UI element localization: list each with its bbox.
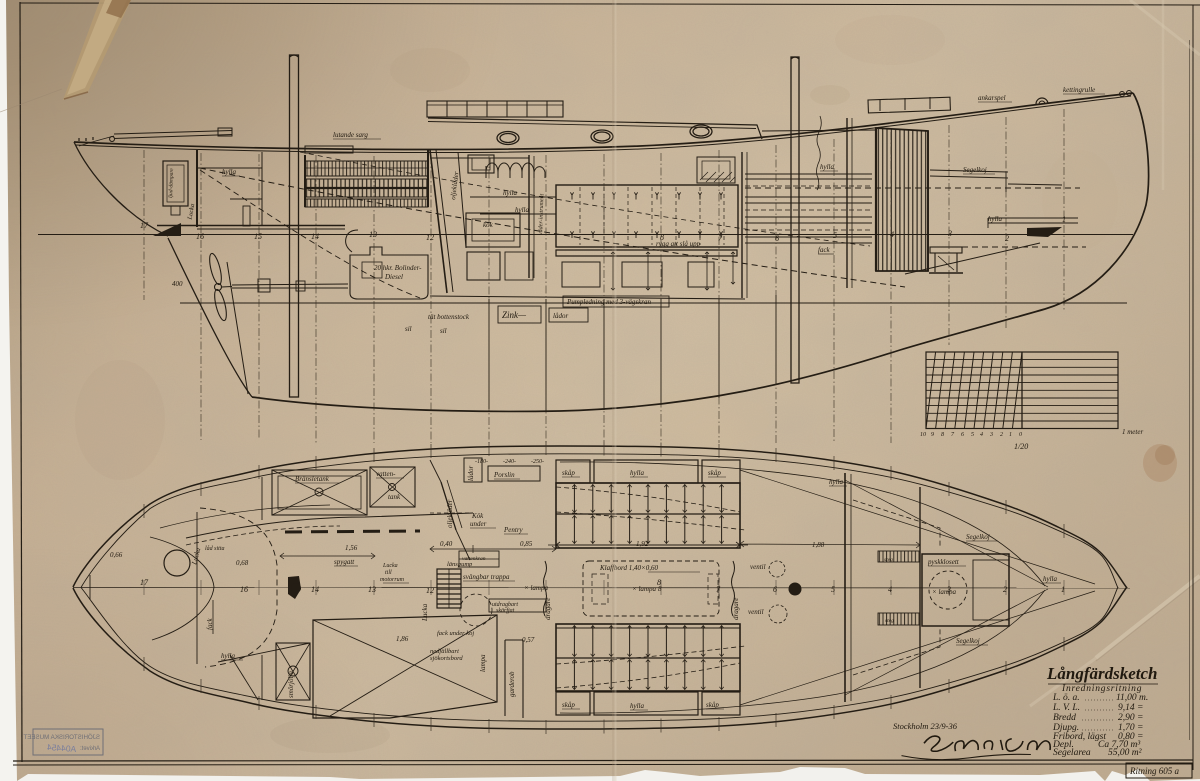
svg-text:0,68: 0,68 xyxy=(236,559,249,567)
svg-text:17: 17 xyxy=(140,221,149,230)
svg-text:skåp: skåp xyxy=(562,701,575,709)
svg-text:1: 1 xyxy=(1062,215,1066,224)
svg-text:6: 6 xyxy=(961,432,964,438)
svg-text:till: till xyxy=(385,570,392,576)
svg-text:1 meter: 1 meter xyxy=(1122,428,1143,436)
svg-text:0: 0 xyxy=(1019,432,1022,438)
svg-text:Bredd: Bredd xyxy=(1053,713,1076,723)
svg-text:hylla: hylla xyxy=(221,652,235,660)
svg-text:SJÖHISTORISKA MUSEET: SJÖHISTORISKA MUSEET xyxy=(23,734,100,741)
svg-text:1,86: 1,86 xyxy=(396,635,409,643)
svg-text:10: 10 xyxy=(920,432,926,438)
svg-text:4: 4 xyxy=(890,230,894,239)
svg-text:skåp: skåp xyxy=(706,701,719,709)
svg-text:1,88: 1,88 xyxy=(812,541,825,549)
svg-text:6: 6 xyxy=(775,234,779,243)
svg-text:ventil: ventil xyxy=(748,608,764,616)
svg-text:5: 5 xyxy=(971,432,974,438)
svg-text:12: 12 xyxy=(426,233,434,242)
svg-text:ljud-dämpare: ljud-dämpare xyxy=(168,168,175,198)
svg-text:8: 8 xyxy=(941,432,944,438)
svg-text:12: 12 xyxy=(426,586,434,595)
svg-text:dragare: dragare xyxy=(544,598,552,620)
svg-text:skärfjat: skärfjat xyxy=(496,607,515,614)
svg-text:rygg att slå upp: rygg att slå upp xyxy=(656,240,701,248)
svg-text:oljekläder: oljekläder xyxy=(446,499,454,528)
svg-text:Stockholm 23/9-36: Stockholm 23/9-36 xyxy=(893,721,958,731)
svg-text:hylla: hylla xyxy=(829,478,843,486)
svg-text:låd sitta: låd sitta xyxy=(205,545,225,552)
svg-text:17: 17 xyxy=(140,578,149,587)
svg-text:× lampa: × lampa xyxy=(632,585,656,593)
svg-text:Segelarea: Segelarea xyxy=(1053,748,1091,758)
svg-text:5: 5 xyxy=(833,231,837,240)
svg-text:× lampa: × lampa xyxy=(524,584,548,592)
svg-text:pyskklosett: pyskklosett xyxy=(927,558,960,566)
svg-text:2: 2 xyxy=(1003,585,1007,594)
svg-text:lådor: lådor xyxy=(553,312,568,320)
svg-text:steg: steg xyxy=(884,557,893,563)
svg-text:under: under xyxy=(470,520,487,528)
svg-text:Segelkoj: Segelkoj xyxy=(966,533,990,541)
svg-text:Porslin: Porslin xyxy=(493,471,515,479)
svg-text:Ritning 605 a: Ritning 605 a xyxy=(1129,766,1179,776)
svg-text:hylla: hylla xyxy=(630,702,644,710)
svg-text:hylla: hylla xyxy=(503,189,517,197)
svg-text:svängbar trappa: svängbar trappa xyxy=(463,573,510,581)
svg-text:3: 3 xyxy=(989,432,993,438)
svg-text:14: 14 xyxy=(311,585,319,594)
svg-text:lutande sarg: lutande sarg xyxy=(333,131,368,139)
svg-text:hylla: hylla xyxy=(1043,575,1057,583)
svg-text:11,00 m.: 11,00 m. xyxy=(1116,693,1148,703)
svg-text:3: 3 xyxy=(947,229,952,238)
svg-text:Zink—: Zink— xyxy=(502,310,527,320)
svg-text:-250-: -250- xyxy=(531,459,544,465)
svg-text:9: 9 xyxy=(931,432,934,438)
svg-text:400: 400 xyxy=(172,280,183,288)
svg-text:tank: tank xyxy=(388,493,401,501)
svg-text:16: 16 xyxy=(196,232,204,241)
svg-text:L. V. L.: L. V. L. xyxy=(1052,703,1080,713)
svg-text:nedfällbart: nedfällbart xyxy=(430,648,459,655)
svg-text:lådor: lådor xyxy=(467,466,475,481)
svg-text:Arkivet:: Arkivet: xyxy=(80,746,100,752)
svg-text:Segelkoj: Segelkoj xyxy=(956,637,980,645)
svg-text:0,40: 0,40 xyxy=(440,540,453,548)
svg-text:9,14 =: 9,14 = xyxy=(1118,703,1143,713)
svg-text:Bränsletank: Bränsletank xyxy=(295,475,330,483)
svg-text:skåp: skåp xyxy=(562,469,575,477)
svg-text:-180-: -180- xyxy=(475,459,488,465)
svg-text:14: 14 xyxy=(311,232,319,241)
svg-text:fack under koj: fack under koj xyxy=(437,630,474,637)
svg-text:Klaffbord 1,40×0,60: Klaffbord 1,40×0,60 xyxy=(599,564,658,572)
svg-text:tät bottenstock: tät bottenstock xyxy=(428,313,470,321)
svg-text:dragare: dragare xyxy=(732,598,740,620)
svg-text:fack: fack xyxy=(206,617,214,630)
svg-text:1: 1 xyxy=(1061,585,1065,594)
svg-text:2: 2 xyxy=(1000,432,1003,438)
svg-text:15: 15 xyxy=(254,232,262,241)
svg-text:55,00 m²: 55,00 m² xyxy=(1108,748,1142,758)
svg-text:Pumpledning med 3-vägskran: Pumpledning med 3-vägskran xyxy=(566,298,651,306)
svg-text:Långfärdsketch: Långfärdsketch xyxy=(1046,664,1158,683)
svg-text:0,57: 0,57 xyxy=(522,636,535,644)
svg-text:0,66: 0,66 xyxy=(110,551,123,559)
svg-text:hylla: hylla xyxy=(515,206,529,214)
svg-text:skåp: skåp xyxy=(708,469,721,477)
svg-text:A04454: A04454 xyxy=(46,742,76,754)
svg-text:fack: fack xyxy=(818,246,831,254)
svg-text:länspump: länspump xyxy=(447,561,473,568)
svg-text:smörjolja: smörjolja xyxy=(287,671,295,698)
svg-text:hylla: hylla xyxy=(820,163,834,171)
svg-text:Segelkoj: Segelkoj xyxy=(963,166,987,174)
svg-text:1: 1 xyxy=(1009,432,1012,438)
svg-text:steg: steg xyxy=(885,618,894,624)
svg-text:4: 4 xyxy=(888,585,892,594)
svg-text:L. ö. a.: L. ö. a. xyxy=(1052,693,1080,703)
svg-text:-240-: -240- xyxy=(503,458,516,465)
svg-text:spygatt: spygatt xyxy=(334,558,355,566)
svg-text:kettingrulle: kettingrulle xyxy=(1063,86,1095,94)
svg-text:6: 6 xyxy=(773,585,777,594)
svg-text:× lampa: × lampa xyxy=(932,588,956,596)
svg-text:1/20: 1/20 xyxy=(1014,442,1028,451)
svg-text:8: 8 xyxy=(658,585,662,593)
svg-text:16: 16 xyxy=(240,585,248,594)
svg-text:ankarspel: ankarspel xyxy=(978,94,1006,102)
svg-text:Diesel: Diesel xyxy=(384,273,403,281)
svg-text:Lucka: Lucka xyxy=(421,603,429,622)
svg-text:13: 13 xyxy=(369,230,377,239)
svg-text:2,90 =: 2,90 = xyxy=(1118,713,1143,723)
svg-text:sil: sil xyxy=(405,325,412,333)
svg-text:sil: sil xyxy=(440,327,447,335)
svg-text:Kök: Kök xyxy=(471,512,484,520)
svg-text:Pentry: Pentry xyxy=(503,526,524,534)
svg-text:4: 4 xyxy=(980,431,983,438)
svg-text:motorrum: motorrum xyxy=(380,577,405,583)
svg-text:lampa: lampa xyxy=(479,654,487,672)
svg-text:5: 5 xyxy=(831,585,835,594)
svg-text:kök: kök xyxy=(483,221,494,229)
svg-text:20 hkr. Bolinder-: 20 hkr. Bolinder- xyxy=(374,264,422,272)
svg-text:0,85: 0,85 xyxy=(520,540,533,548)
svg-text:1,92: 1,92 xyxy=(636,540,649,548)
svg-text:hylla: hylla xyxy=(630,469,644,477)
svg-text:vatten-: vatten- xyxy=(376,470,396,478)
svg-text:garderob: garderob xyxy=(508,671,516,697)
svg-text:hylla: hylla xyxy=(222,168,236,176)
svg-text:ventil: ventil xyxy=(750,563,766,571)
svg-text:1,56: 1,56 xyxy=(345,544,358,552)
svg-text:2: 2 xyxy=(1005,234,1009,243)
svg-text:sjökortsbord: sjökortsbord xyxy=(430,655,463,662)
svg-text:Lucka: Lucka xyxy=(382,563,398,569)
svg-text:hylla: hylla xyxy=(988,215,1002,223)
svg-text:13: 13 xyxy=(368,585,376,594)
